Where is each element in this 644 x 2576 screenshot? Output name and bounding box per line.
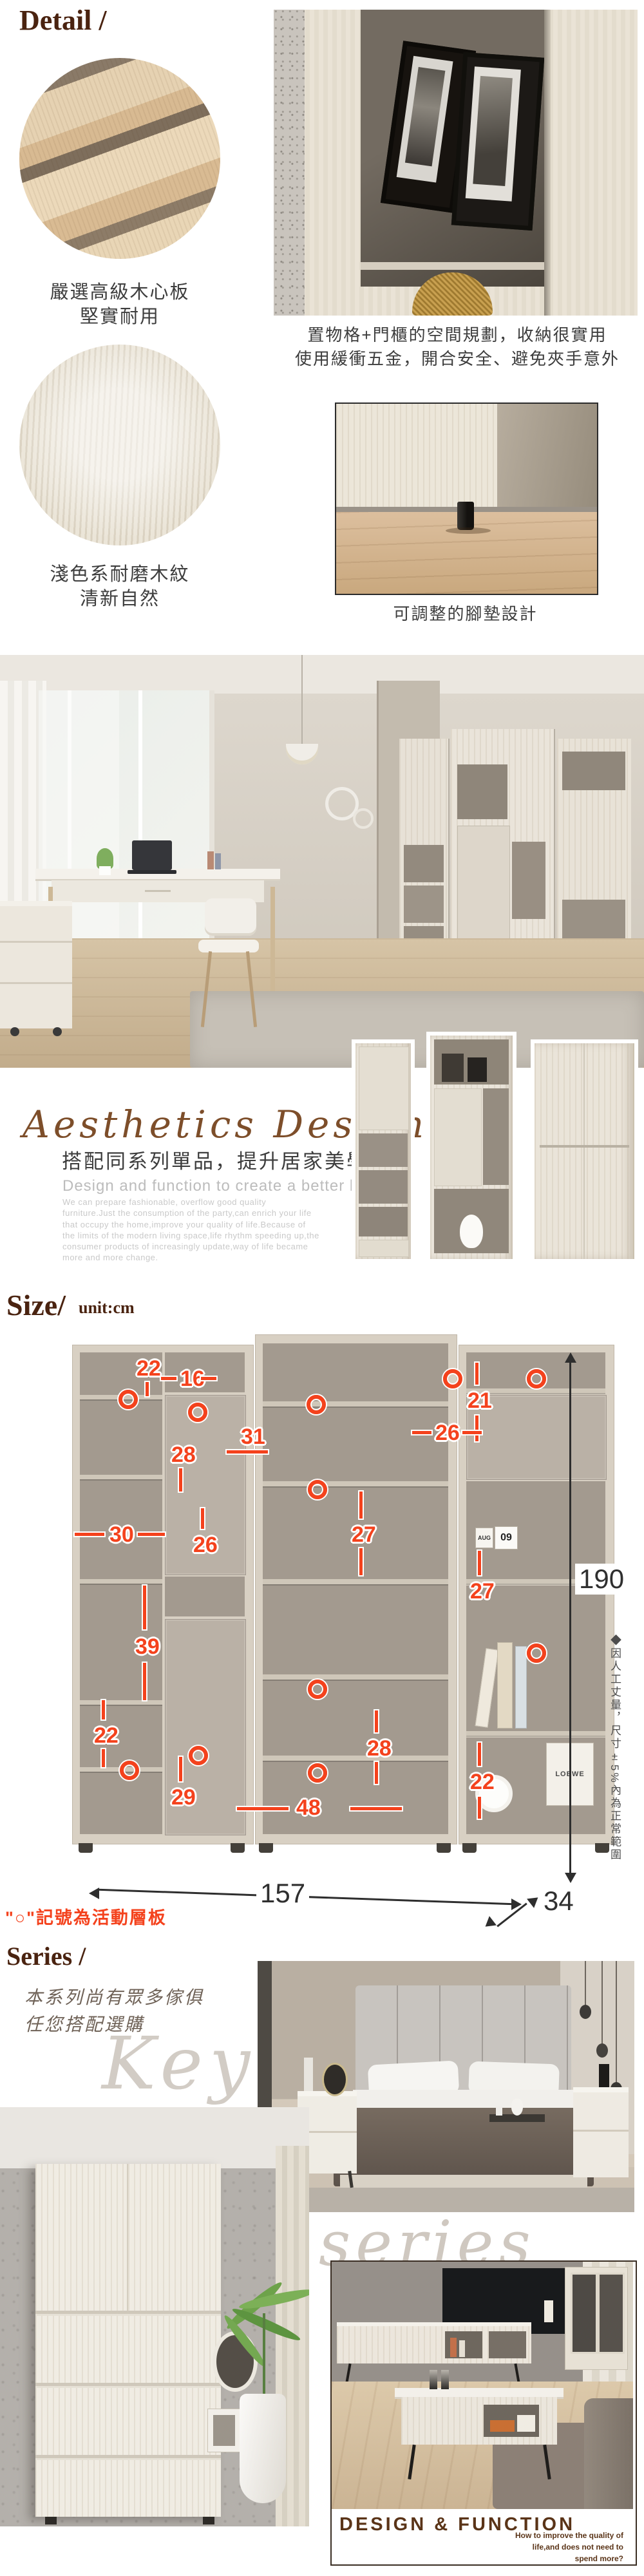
material-caption-line2: 清新自然 [19, 583, 220, 611]
diagram-foot [437, 1843, 451, 1853]
diagram-foot [462, 1843, 477, 1853]
dim-tick [201, 1377, 216, 1380]
dim-tick [161, 1377, 176, 1380]
diagram-shelf [263, 1674, 448, 1680]
diagram-shelf [263, 1579, 448, 1584]
sofa-arm [584, 2398, 633, 2509]
photo1-caption-line2: 使用緩衝五金，開合安全、避免夾手意外 [270, 346, 644, 370]
books-prop [450, 2338, 457, 2357]
orange-box-prop [490, 2420, 515, 2432]
series-desc-line1: 本系列尚有眾多傢俱 [24, 1984, 204, 2009]
movable-shelf-note: "○"記號為活動層板 [5, 1904, 167, 1929]
movable-shelf-marker [120, 1761, 139, 1780]
dim-tick [146, 1382, 149, 1396]
caster-wheel [10, 1027, 19, 1036]
cabinet-shadow-side [497, 404, 597, 512]
movable-shelf-marker [189, 1746, 208, 1765]
wardrobe-cabinet [35, 2164, 221, 2517]
frame-mat [466, 66, 521, 202]
measurement-disclaimer-vertical: ◆因人工丈量，尺寸±5%內為正常範圍 [607, 1634, 623, 1940]
cabinet-door [434, 1088, 482, 1186]
series-title: Series / [6, 1941, 86, 1971]
material-caption-line1: 嚴選高級木心板 [19, 277, 220, 304]
cabinet-niche [359, 1207, 408, 1236]
dim-tick [478, 1551, 481, 1575]
dim-tick [143, 1663, 146, 1700]
dim-tick [478, 1797, 481, 1819]
cabinet-niche [434, 1189, 509, 1253]
dim-tick [138, 1533, 165, 1536]
nightstand-right [573, 2087, 629, 2177]
dim-tick [201, 1508, 204, 1529]
cabinet-niche [434, 1039, 509, 1084]
mobile-cabinet [0, 901, 72, 1028]
livingroom-photo [332, 2262, 633, 2509]
aesthetics-subheadline: Design and function to create a better l… [62, 1177, 377, 1195]
dim-tick [179, 1757, 182, 1781]
adjustable-foot [457, 502, 474, 530]
detail-photo-footpad [335, 402, 598, 595]
cabinet-render-wardrobe [535, 1043, 634, 1259]
floor-vase [240, 2394, 286, 2503]
aesthetics-paragraph: We can prepare fashionable, overflow goo… [62, 1197, 320, 1264]
vanity-mirror-prop [322, 2063, 348, 2096]
door-gap [583, 1043, 585, 1259]
books-prop [468, 1057, 487, 1082]
height-dim-label: 190 [575, 1564, 628, 1595]
dim-tick [359, 1548, 363, 1575]
frame-art [405, 67, 445, 166]
movable-shelf-marker [527, 1643, 546, 1663]
laptop-base [128, 870, 176, 874]
pendant-ball [596, 2043, 608, 2058]
cabinet-door [359, 1240, 409, 1257]
movable-shelf-marker [188, 1403, 207, 1422]
books-prop [442, 1054, 464, 1082]
handle-groove [540, 1145, 629, 1148]
niche-shelf [361, 262, 544, 270]
cabinet-niche [457, 764, 507, 819]
footer-tagline-line1: How to improve the quality of [457, 2530, 623, 2541]
desk-books [215, 853, 221, 869]
depth-dim-label: 34 [540, 1886, 578, 1917]
cabinet-niche [359, 1133, 408, 1167]
cabinet-niche [361, 10, 544, 287]
size-unit: unit:cm [79, 1298, 135, 1318]
dim-label: 29 [171, 1785, 196, 1810]
pendant-cord [616, 1961, 617, 2083]
dim-tick [375, 1762, 378, 1784]
tv-stand [337, 2322, 531, 2363]
cabinet-render-narrow [355, 1043, 411, 1259]
movable-shelf-marker [308, 1480, 327, 1499]
dim-tick [179, 1468, 182, 1492]
glass-prop [430, 2370, 437, 2389]
drawer-handle [145, 890, 171, 892]
detail-photo-shelving [274, 10, 638, 316]
foot-shadow [446, 527, 491, 534]
dim-label: 22 [470, 1770, 495, 1795]
dim-tick [475, 1363, 478, 1385]
cabinet-door [359, 1046, 409, 1130]
dim-tick [478, 1743, 481, 1766]
books-prop [515, 1646, 527, 1728]
lifestyle-photo [0, 655, 644, 1068]
cabinet-niche [483, 1088, 509, 1185]
dim-tick [412, 1431, 431, 1434]
table-niche [484, 2405, 539, 2437]
movable-shelf-marker [307, 1395, 326, 1414]
white-box-prop [517, 2415, 535, 2432]
stand-niche [489, 2331, 526, 2358]
pendant-cord [601, 1961, 603, 2045]
stand-leg [514, 2363, 520, 2383]
vase-prop [304, 2058, 313, 2091]
diagram-left-gap [165, 1577, 245, 1616]
diagram-foot [79, 1843, 93, 1853]
diagram-shelf [80, 1579, 162, 1584]
footer-tagline-line2: life,and does not need to [457, 2541, 623, 2553]
cabinet-niche [562, 752, 625, 790]
plywood-material-image [19, 58, 220, 259]
drawer-line [573, 2130, 629, 2132]
dim-label: 26 [435, 1421, 460, 1446]
dim-tick [350, 1807, 402, 1810]
dim-tick [359, 1492, 363, 1519]
dim-tick [102, 1749, 105, 1767]
calendar-prop: AUG [475, 1528, 493, 1548]
door-gap [127, 2164, 128, 2312]
glass-door [598, 2273, 625, 2354]
dim-label: 22 [137, 1356, 161, 1381]
wall-clock-small [353, 808, 374, 829]
diagram-left-opencol [80, 1352, 162, 1834]
dim-label: 28 [171, 1443, 196, 1468]
dim-tick [462, 1431, 482, 1434]
picture-frame [451, 52, 544, 231]
dim-tick [227, 1450, 268, 1454]
movable-shelf-marker [308, 1763, 327, 1783]
chair-back [205, 898, 256, 936]
stand-niche [445, 2331, 482, 2358]
drawer-line [0, 982, 72, 984]
reed-diffuser-prop [544, 2300, 553, 2322]
movable-shelf-marker [527, 1369, 546, 1388]
door-edge-shadow [544, 10, 551, 316]
dim-tick [375, 1710, 378, 1732]
wardrobe-foot [45, 2517, 57, 2524]
frame-mat [397, 56, 453, 183]
stand-leg [345, 2363, 351, 2383]
footer-tagline: How to improve the quality of life,and d… [457, 2530, 623, 2564]
dim-tick [75, 1533, 104, 1536]
glass-cabinet [565, 2267, 628, 2370]
arrowhead-left [482, 1916, 497, 1931]
pendant-cord [301, 655, 303, 745]
arrowhead-up [565, 1352, 576, 1363]
photo1-caption-line1: 置物格+門櫃的空間規劃，收納很實用 [270, 322, 644, 346]
height-dim-line [569, 1360, 571, 1875]
drawer-groove [35, 2311, 221, 2314]
chair-seat [198, 940, 259, 952]
diagram-shelf [263, 1756, 448, 1761]
diagram-shelf [80, 1700, 162, 1705]
small-frame [207, 2409, 241, 2452]
dim-tick [475, 1416, 478, 1441]
dim-label: 39 [135, 1634, 160, 1660]
arrowhead-left [89, 1888, 99, 1899]
diagram-shelf [263, 1401, 448, 1406]
woodgrain-material-image [19, 345, 220, 545]
dim-label: 28 [367, 1736, 392, 1761]
diagram-shelf [263, 1481, 448, 1486]
teapot-prop [511, 2099, 523, 2116]
material-caption-line1: 淺色系耐磨木紋 [19, 559, 220, 586]
drawer-groove [35, 2455, 221, 2458]
concrete-wall-strip [274, 10, 305, 316]
material-caption-line2: 堅實耐用 [19, 301, 220, 328]
bright-wall-top [0, 2107, 309, 2168]
oval-portrait-frame [213, 2331, 258, 2392]
movable-shelf-marker [308, 1680, 327, 1699]
books-prop [459, 2340, 465, 2357]
movable-shelf-marker [118, 1390, 138, 1409]
diagram-shelf [466, 1731, 605, 1736]
pendant-cord [585, 1961, 586, 2006]
glass-door [571, 2273, 598, 2354]
diagram-shelf [80, 1475, 162, 1479]
diagram-foot [259, 1843, 273, 1853]
diagram-foot [231, 1843, 245, 1853]
size-title: Size/ [6, 1288, 66, 1322]
aesthetics-headline: 搭配同系列單品，提升居家美學 [62, 1145, 368, 1174]
dim-tick [237, 1807, 289, 1810]
cabinet-niche [512, 842, 545, 919]
desk-leg [270, 887, 275, 991]
plant-pot [99, 866, 111, 875]
frame-art [473, 76, 513, 186]
coffee-table-top [395, 2388, 563, 2397]
desk-books [207, 851, 214, 869]
dim-label: 26 [193, 1533, 218, 1558]
wardrobe-foot [203, 2517, 214, 2524]
books-prop [497, 1642, 513, 1728]
cup-prop [496, 2107, 502, 2116]
arrowhead-down [565, 1873, 576, 1883]
bedroom-photo [258, 1961, 634, 2212]
movable-shelf-marker [443, 1369, 462, 1388]
vase-prop [460, 1215, 483, 1248]
dim-label: 27 [470, 1579, 495, 1604]
diagram-left-topniche [165, 1352, 245, 1392]
footer-tagline-line3: spend more? [457, 2553, 623, 2564]
calendar-prop: 09 [495, 1526, 518, 1549]
cabinet-niche [359, 1170, 408, 1204]
product-page: Detail / 嚴選高級木心板 堅實耐用 置物格+門櫃的空間規劃，收納很實用 … [0, 0, 644, 2576]
photo2-caption: 可調整的腳墊設計 [335, 601, 596, 625]
window-mullion [138, 690, 142, 951]
dim-label: 31 [241, 1425, 265, 1450]
frame-art [213, 2415, 235, 2446]
drawer-line [0, 941, 72, 943]
wardrobe-photo [0, 2107, 309, 2526]
dim-tick [102, 1700, 105, 1719]
cabinet-niche [404, 845, 444, 882]
livingroom-framed-box: DESIGN & FUNCTION How to improve the qua… [330, 2260, 637, 2566]
width-dim-label: 157 [256, 1878, 309, 1909]
laptop-screen [132, 840, 172, 870]
drawer-groove [35, 2383, 221, 2386]
dim-label: 48 [296, 1795, 321, 1821]
dim-label: 27 [352, 1522, 376, 1548]
cabinet-niche [404, 885, 444, 923]
dim-label: 21 [468, 1388, 492, 1414]
dim-label: 30 [109, 1522, 134, 1548]
cabinet-render-display [430, 1036, 513, 1259]
coffee-table-body [401, 2397, 557, 2445]
plant-stem [263, 2313, 265, 2403]
dim-label: 22 [94, 1723, 118, 1748]
pendant-ball [580, 2005, 591, 2019]
caster-wheel [53, 1027, 62, 1036]
dim-tick [143, 1586, 146, 1629]
detail-title: Detail / [19, 4, 107, 37]
bottle-prop [599, 2064, 609, 2087]
glass-prop [441, 2370, 449, 2389]
